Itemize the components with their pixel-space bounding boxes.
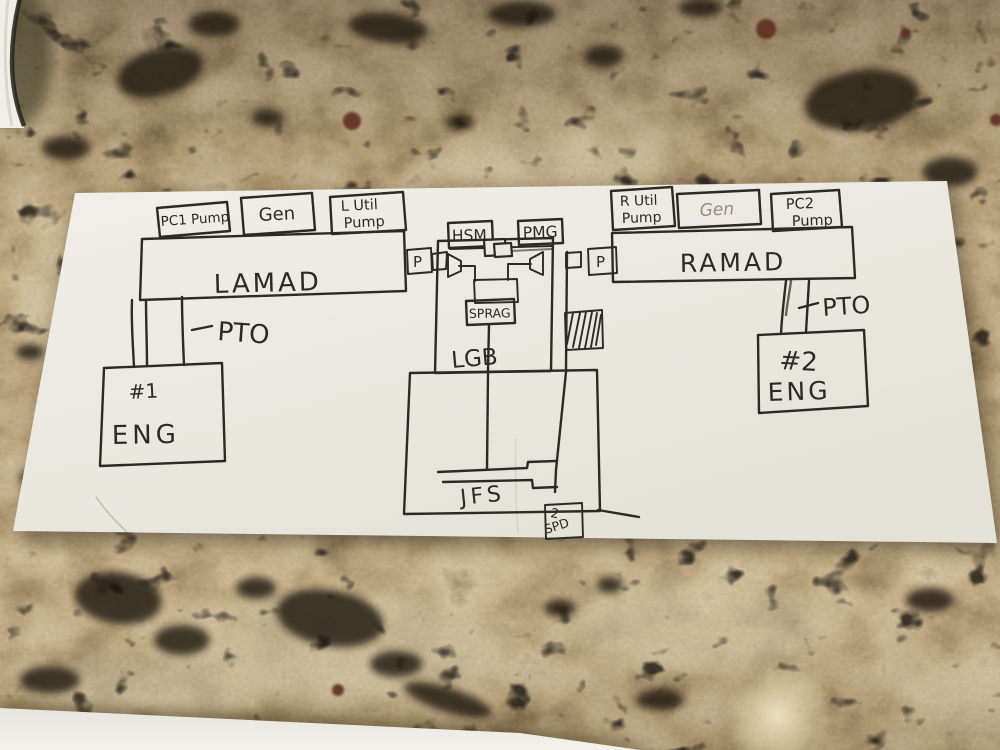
clutch-symbol-inner [494, 243, 512, 257]
left-pto-shaft-line-2 [146, 300, 147, 366]
pc2-label-line2: Pump [792, 213, 834, 230]
engine1-number: #1 [128, 378, 159, 404]
engine2-number: #2 [779, 346, 819, 378]
engine2-label: ENG [767, 376, 831, 407]
engine1-label: ENG [112, 420, 181, 451]
hsm-label: HSM [452, 226, 487, 245]
r-util-label-line2: Pump [622, 210, 662, 227]
pc2-label-line1: PC2 [786, 196, 815, 213]
jfs-label: JFS [457, 481, 506, 511]
photo-of-hand-drawn-schematic: PC1 Pump Gen L Util Pump LAMAD P PTO #1 … [0, 0, 1000, 750]
gen-right-label: Gen [699, 199, 734, 221]
jfs-input-line [487, 373, 488, 469]
l-util-label-line1: L Util [340, 197, 378, 215]
l-util-label-line2: Pump [343, 214, 385, 232]
sprag-label: SPRAG [469, 305, 511, 321]
p-port-left-label: P [413, 253, 422, 271]
gen-left-label: Gen [258, 203, 295, 226]
p-port-right-label: P [596, 253, 605, 271]
pto-left-label: PTO [217, 317, 271, 351]
lgb-label: LGB [450, 344, 499, 374]
right-drive-line-upper [566, 252, 567, 370]
pto-right-label: PTO [821, 291, 871, 322]
lamad-label: LAMAD [213, 267, 322, 300]
pmg-label: PMG [523, 223, 558, 242]
r-util-label-line1: R Util [620, 193, 658, 210]
ramad-label: RAMAD [680, 247, 787, 278]
